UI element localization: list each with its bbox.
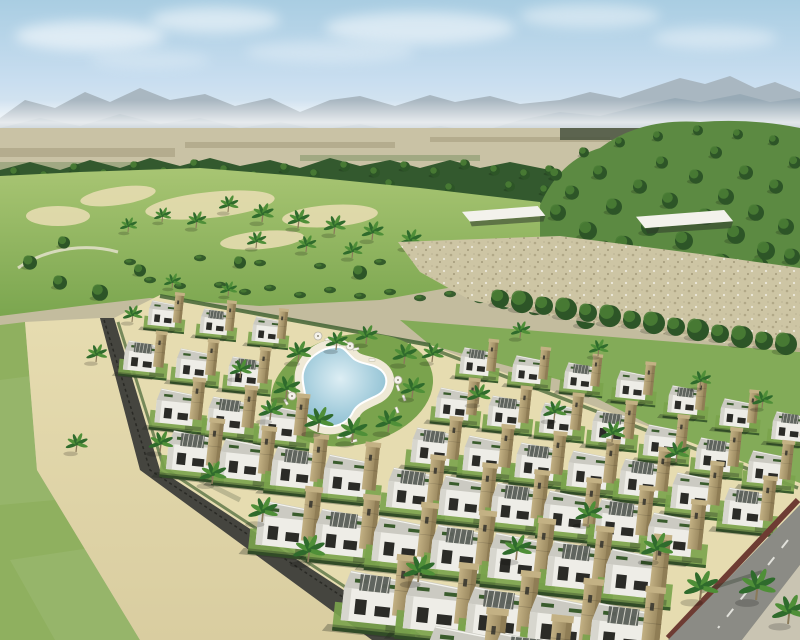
bush [124, 259, 136, 265]
bush [354, 293, 366, 299]
cloud [520, 4, 660, 28]
parasol [288, 392, 296, 400]
parasol [394, 376, 402, 384]
sun-lounger [369, 359, 375, 361]
bush [444, 291, 456, 297]
cloud [245, 41, 415, 63]
bush [239, 289, 251, 295]
bush [384, 289, 396, 295]
bush [294, 292, 306, 298]
bush [314, 263, 326, 269]
bush [324, 287, 336, 293]
field-strip [185, 142, 395, 148]
bush [144, 277, 156, 283]
sand-patch [26, 206, 90, 226]
parasol [314, 332, 322, 340]
bush [414, 295, 426, 301]
cloud [15, 21, 165, 51]
bush [264, 285, 276, 291]
field-strip [0, 148, 175, 157]
bush [374, 259, 386, 265]
bush [194, 255, 206, 261]
cloud [653, 27, 777, 49]
cloud [325, 12, 515, 44]
bush [254, 260, 266, 266]
aerial-render-image [0, 0, 800, 640]
resort-aerial-scene [0, 0, 800, 640]
cloud [90, 51, 210, 69]
cloud [150, 7, 280, 33]
parasol [346, 342, 354, 350]
